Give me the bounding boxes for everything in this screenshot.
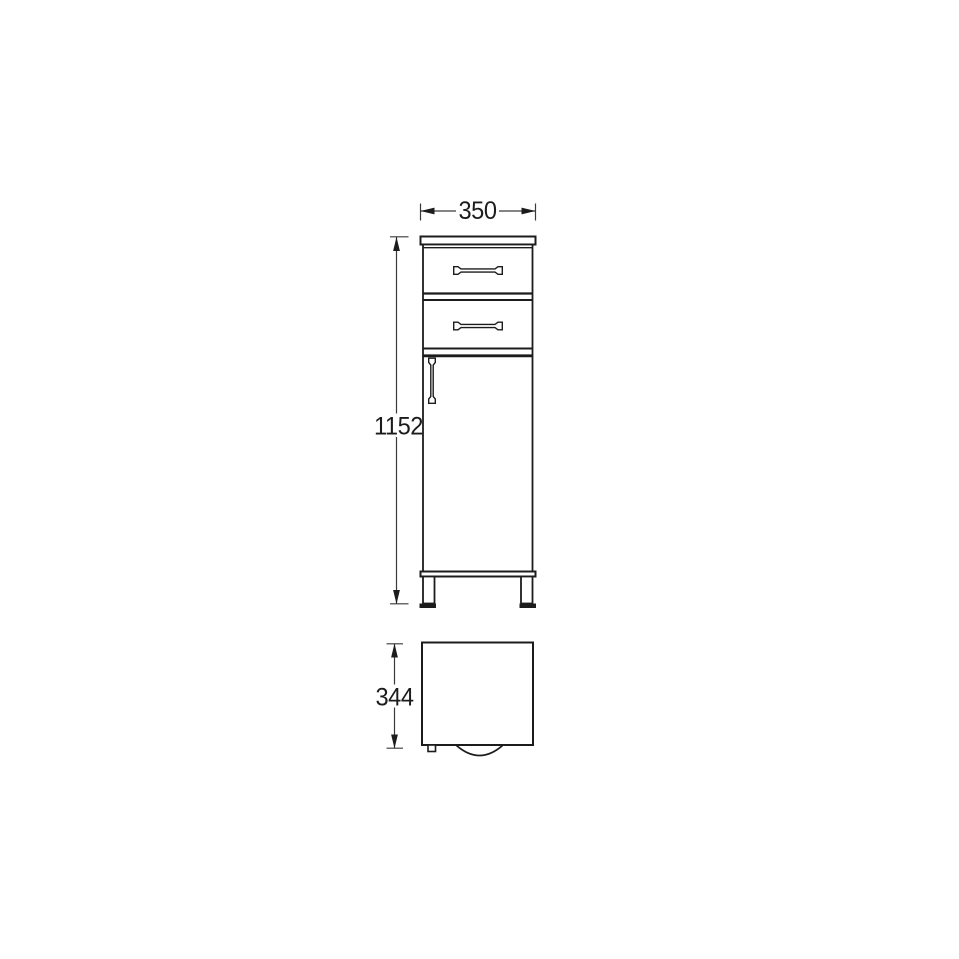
width-dimension: 350: [421, 197, 536, 225]
plan-carcass: [422, 643, 533, 746]
height-dimension-label: 1152: [374, 413, 423, 441]
plan-view: [422, 643, 533, 756]
front-view: [420, 237, 537, 609]
arrowhead-left: [421, 208, 435, 215]
top-panel: [421, 237, 536, 245]
left-leg: [423, 577, 435, 604]
arrowhead-up: [391, 644, 398, 658]
depth-dimension: 344: [374, 644, 416, 749]
right-foot: [520, 604, 537, 609]
drawing-page: 350 1152: [0, 0, 959, 959]
plan-drawer-handle-arc: [457, 746, 503, 756]
arrowhead-down: [393, 590, 400, 604]
height-dimension: 1152: [372, 237, 424, 604]
right-leg: [521, 577, 533, 604]
arrowhead-down: [391, 735, 398, 749]
bottom-panel: [421, 572, 536, 577]
left-foot: [420, 604, 437, 609]
depth-dimension-label: 344: [376, 684, 415, 712]
plan-door-handle: [428, 745, 436, 752]
technical-drawing-canvas: 350 1152: [0, 0, 959, 959]
width-dimension-label: 350: [459, 197, 497, 225]
arrowhead-right: [522, 208, 536, 215]
arrowhead-up: [393, 237, 400, 251]
